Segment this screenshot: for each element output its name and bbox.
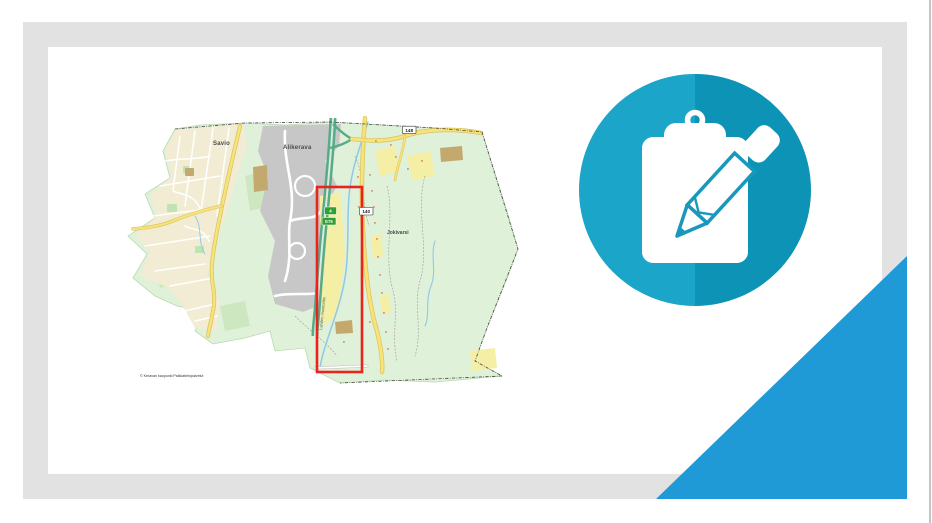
jokivarsi-label: Jokivarsi — [387, 230, 409, 236]
savio-label: Savio — [213, 141, 230, 147]
e-route-badge-label: E75 — [325, 219, 333, 224]
road-148-badge: 148 — [403, 126, 417, 134]
road-148-badge-label: 148 — [405, 128, 413, 133]
road-140-badge: 140 — [360, 208, 374, 216]
window-right-edge — [929, 0, 931, 523]
kerava-map-image: 4 E75 140 148 Savio Alikerava Jokivarsi … — [125, 116, 525, 396]
map-copyright: © Keravan kaupunki Paikkatietopalvelut — [140, 374, 203, 378]
e-route-badge: E75 — [322, 218, 336, 226]
motorway-badge: 4 — [325, 207, 337, 215]
road-140-badge-label: 140 — [362, 209, 370, 214]
alikerava-label: Alikerava — [283, 145, 312, 151]
clipboard-pencil-icon — [578, 73, 812, 307]
